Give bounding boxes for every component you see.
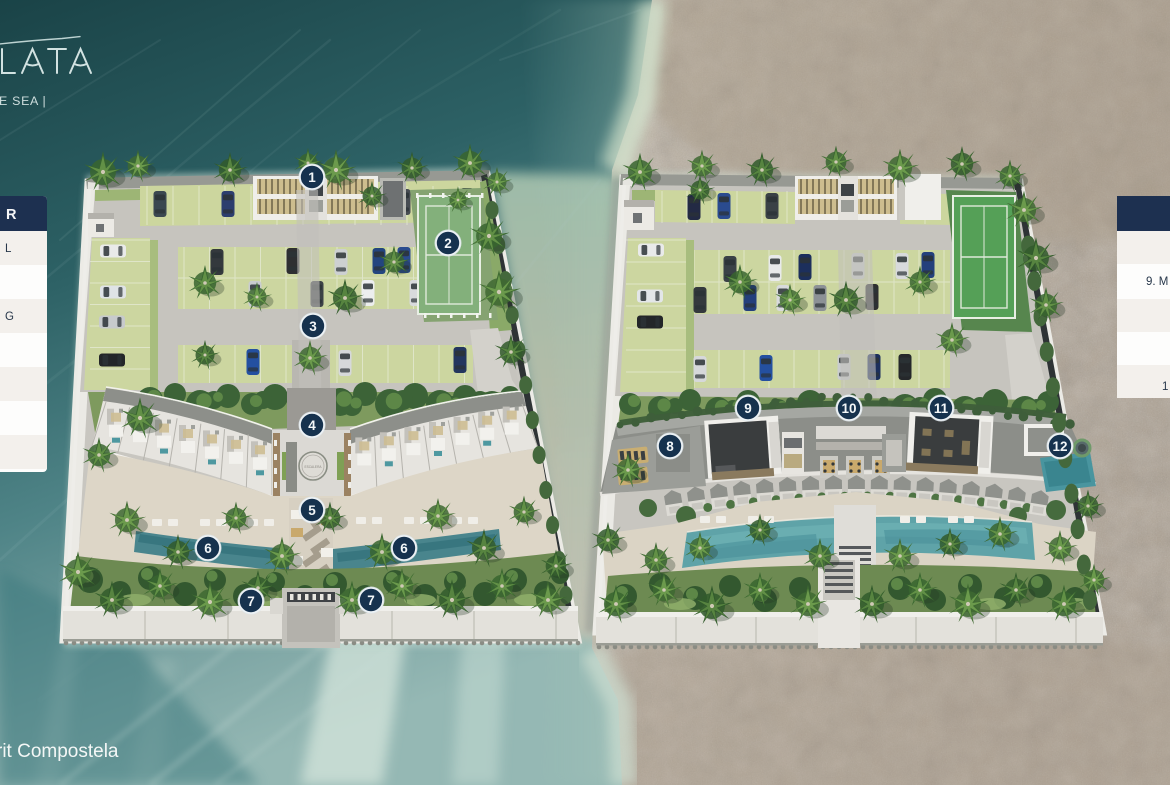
svg-text:7: 7 bbox=[247, 594, 255, 609]
svg-text:10: 10 bbox=[841, 401, 856, 416]
svg-text:L: L bbox=[5, 243, 12, 255]
svg-text:rit Compostela: rit Compostela bbox=[0, 741, 119, 762]
svg-text:3: 3 bbox=[309, 319, 317, 334]
svg-text:2: 2 bbox=[444, 236, 452, 251]
svg-text:11: 11 bbox=[934, 401, 949, 416]
svg-text:ESCALERA: ESCALERA bbox=[304, 465, 322, 469]
svg-text:5: 5 bbox=[308, 503, 316, 518]
svg-text:9: 9 bbox=[744, 401, 752, 416]
svg-text:6: 6 bbox=[400, 541, 408, 556]
svg-text:R: R bbox=[6, 207, 17, 223]
svg-text:4: 4 bbox=[308, 418, 316, 433]
svg-text:6: 6 bbox=[204, 541, 212, 556]
svg-text:1: 1 bbox=[1162, 381, 1168, 393]
svg-text:7: 7 bbox=[367, 593, 375, 608]
svg-text:8: 8 bbox=[666, 439, 674, 454]
svg-text:12: 12 bbox=[1052, 439, 1067, 454]
svg-text:E SEA |: E SEA | bbox=[0, 94, 46, 108]
svg-text:9. M: 9. M bbox=[1146, 276, 1168, 288]
svg-text:G: G bbox=[5, 311, 14, 323]
svg-text:1: 1 bbox=[308, 170, 316, 185]
